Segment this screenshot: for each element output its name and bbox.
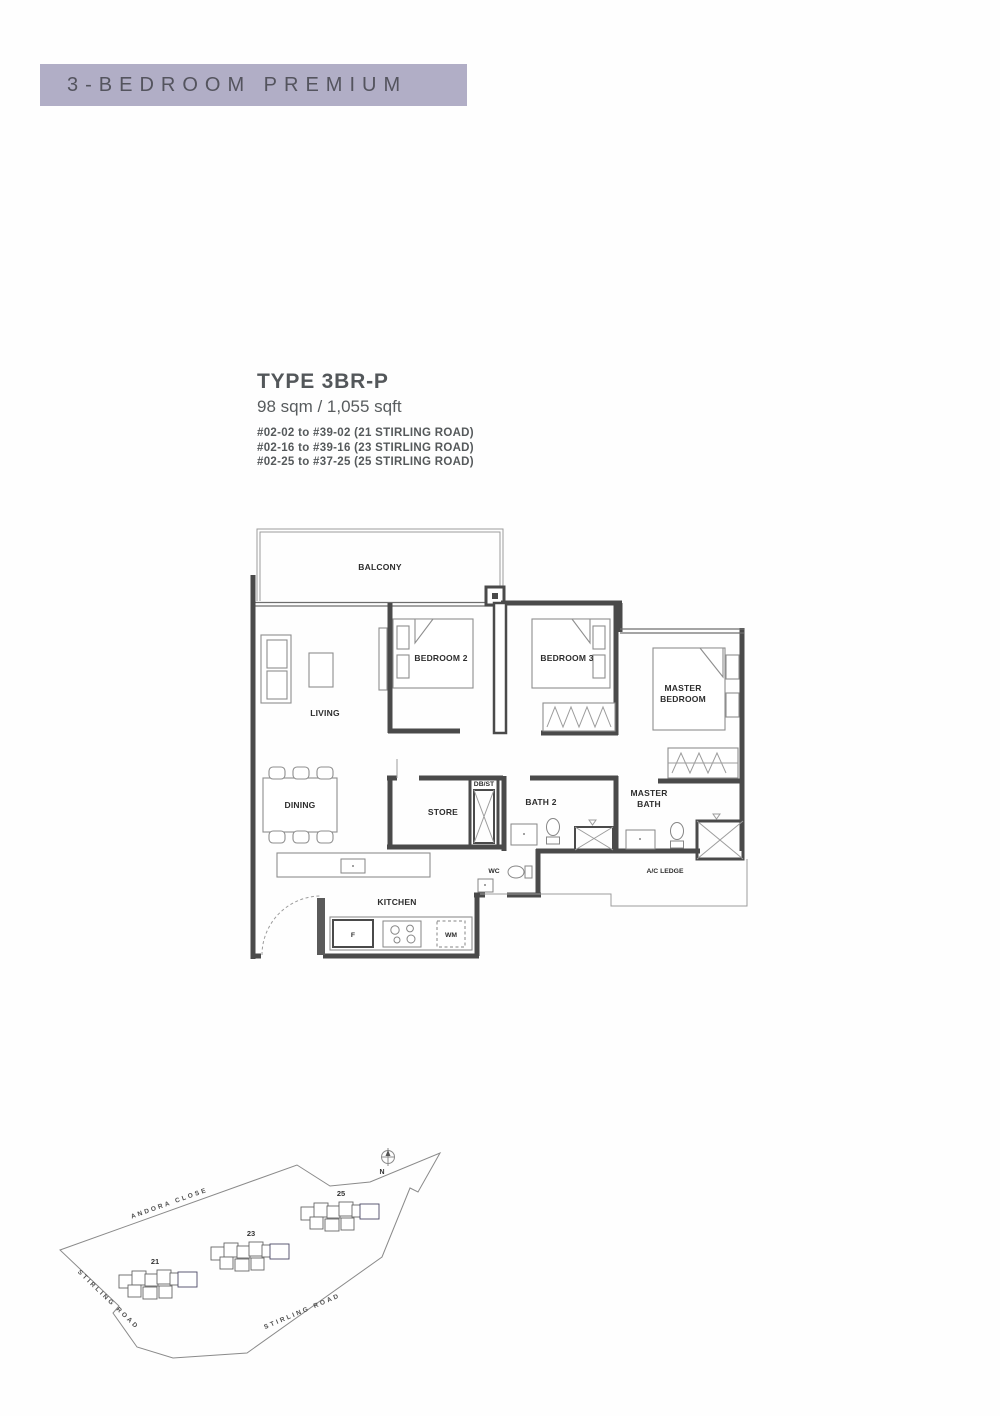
plan-type-banner: 3-BEDROOM PREMIUM [40, 64, 467, 106]
master-bath: MASTER BATH [626, 788, 684, 849]
island-counter [277, 853, 430, 877]
floor-plan: BALCONY [245, 515, 765, 975]
living-room: LIVING [261, 628, 387, 718]
stack-line-1: #02-02 to #39-02 (21 STIRLING ROAD) [257, 426, 474, 441]
stove [383, 921, 421, 947]
entrance-door [262, 896, 325, 955]
banner-title: 3-BEDROOM PREMIUM [40, 74, 407, 97]
block-25-cluster [301, 1202, 379, 1231]
road-label-stirling-middle: STIRLING ROAD [263, 1292, 342, 1331]
block-23-label: 23 [247, 1229, 255, 1238]
tv-console [379, 628, 387, 690]
dividing-wall [494, 603, 506, 733]
bath-2: BATH 2 [504, 776, 618, 851]
unit-stack-list: #02-02 to #39-02 (21 STIRLING ROAD) #02-… [257, 426, 474, 470]
highlighted-unit [270, 1244, 289, 1259]
counter-run: F WM [330, 917, 472, 950]
bedroom2-label: BEDROOM 2 [414, 653, 467, 663]
stack-line-3: #02-25 to #37-25 (25 STIRLING ROAD) [257, 455, 474, 470]
unit-type-title: TYPE 3BR-P [257, 370, 474, 394]
master-bath-label-1: MASTER [630, 788, 667, 798]
north-arrow: N [379, 1148, 395, 1176]
stack-line-2: #02-16 to #39-16 (23 STIRLING ROAD) [257, 441, 474, 456]
unit-info: TYPE 3BR-P 98 sqm / 1,055 sqft #02-02 to… [257, 370, 474, 470]
unit-area: 98 sqm / 1,055 sqft [257, 397, 474, 417]
master-bath-label-2: BATH [637, 799, 661, 809]
highlighted-unit [360, 1204, 379, 1219]
block-21-cluster [119, 1270, 197, 1299]
ac-ledge-label: A/C LEDGE [646, 868, 683, 875]
db-st-label: DB/ST [474, 781, 495, 788]
wardrobe [543, 703, 615, 731]
toilet [508, 866, 532, 878]
master-bedroom-label-1: MASTER [664, 683, 701, 693]
north-label: N [379, 1169, 384, 1176]
bedroom-2: BEDROOM 2 [388, 603, 473, 733]
coffee-table [309, 653, 333, 687]
kitchen-label: KITCHEN [377, 897, 416, 907]
master-bedroom: MASTER BEDROOM [653, 648, 744, 781]
master-bedroom-label-2: BEDROOM [660, 694, 706, 704]
kitchen: KITCHEN F WM [262, 853, 472, 955]
wardrobe [668, 748, 738, 778]
block-23-cluster [211, 1242, 289, 1271]
block-25-label: 25 [337, 1189, 345, 1198]
dining-label: DINING [285, 800, 316, 810]
wc: WC [478, 866, 532, 892]
store-label: STORE [428, 807, 458, 817]
floorplan-page: 3-BEDROOM PREMIUM TYPE 3BR-P 98 sqm / 1,… [0, 0, 1000, 1416]
living-label: LIVING [310, 708, 340, 718]
balcony: BALCONY [255, 529, 504, 606]
sofa [261, 635, 291, 703]
balcony-label: BALCONY [358, 562, 402, 572]
block-21-label: 21 [151, 1257, 159, 1266]
road-label-andora-close: ANDORA CLOSE [130, 1187, 209, 1221]
dining-area: DINING [263, 767, 337, 843]
store-room: STORE [387, 759, 503, 849]
wm-label: WM [445, 932, 457, 939]
fridge-label: F [351, 932, 355, 939]
site-map: N 21 23 [55, 1143, 465, 1378]
bedroom3-label: BEDROOM 3 [540, 653, 593, 663]
wc-label: WC [488, 868, 499, 875]
ledge [575, 820, 613, 850]
db-st-shaft: DB/ST [470, 778, 498, 847]
toilet [671, 823, 684, 849]
bath2-label: BATH 2 [525, 797, 556, 807]
toilet [547, 819, 560, 845]
highlighted-unit [178, 1272, 197, 1287]
ac-ledge: A/C LEDGE [646, 814, 743, 875]
bedroom-3: BEDROOM 3 [532, 603, 618, 735]
